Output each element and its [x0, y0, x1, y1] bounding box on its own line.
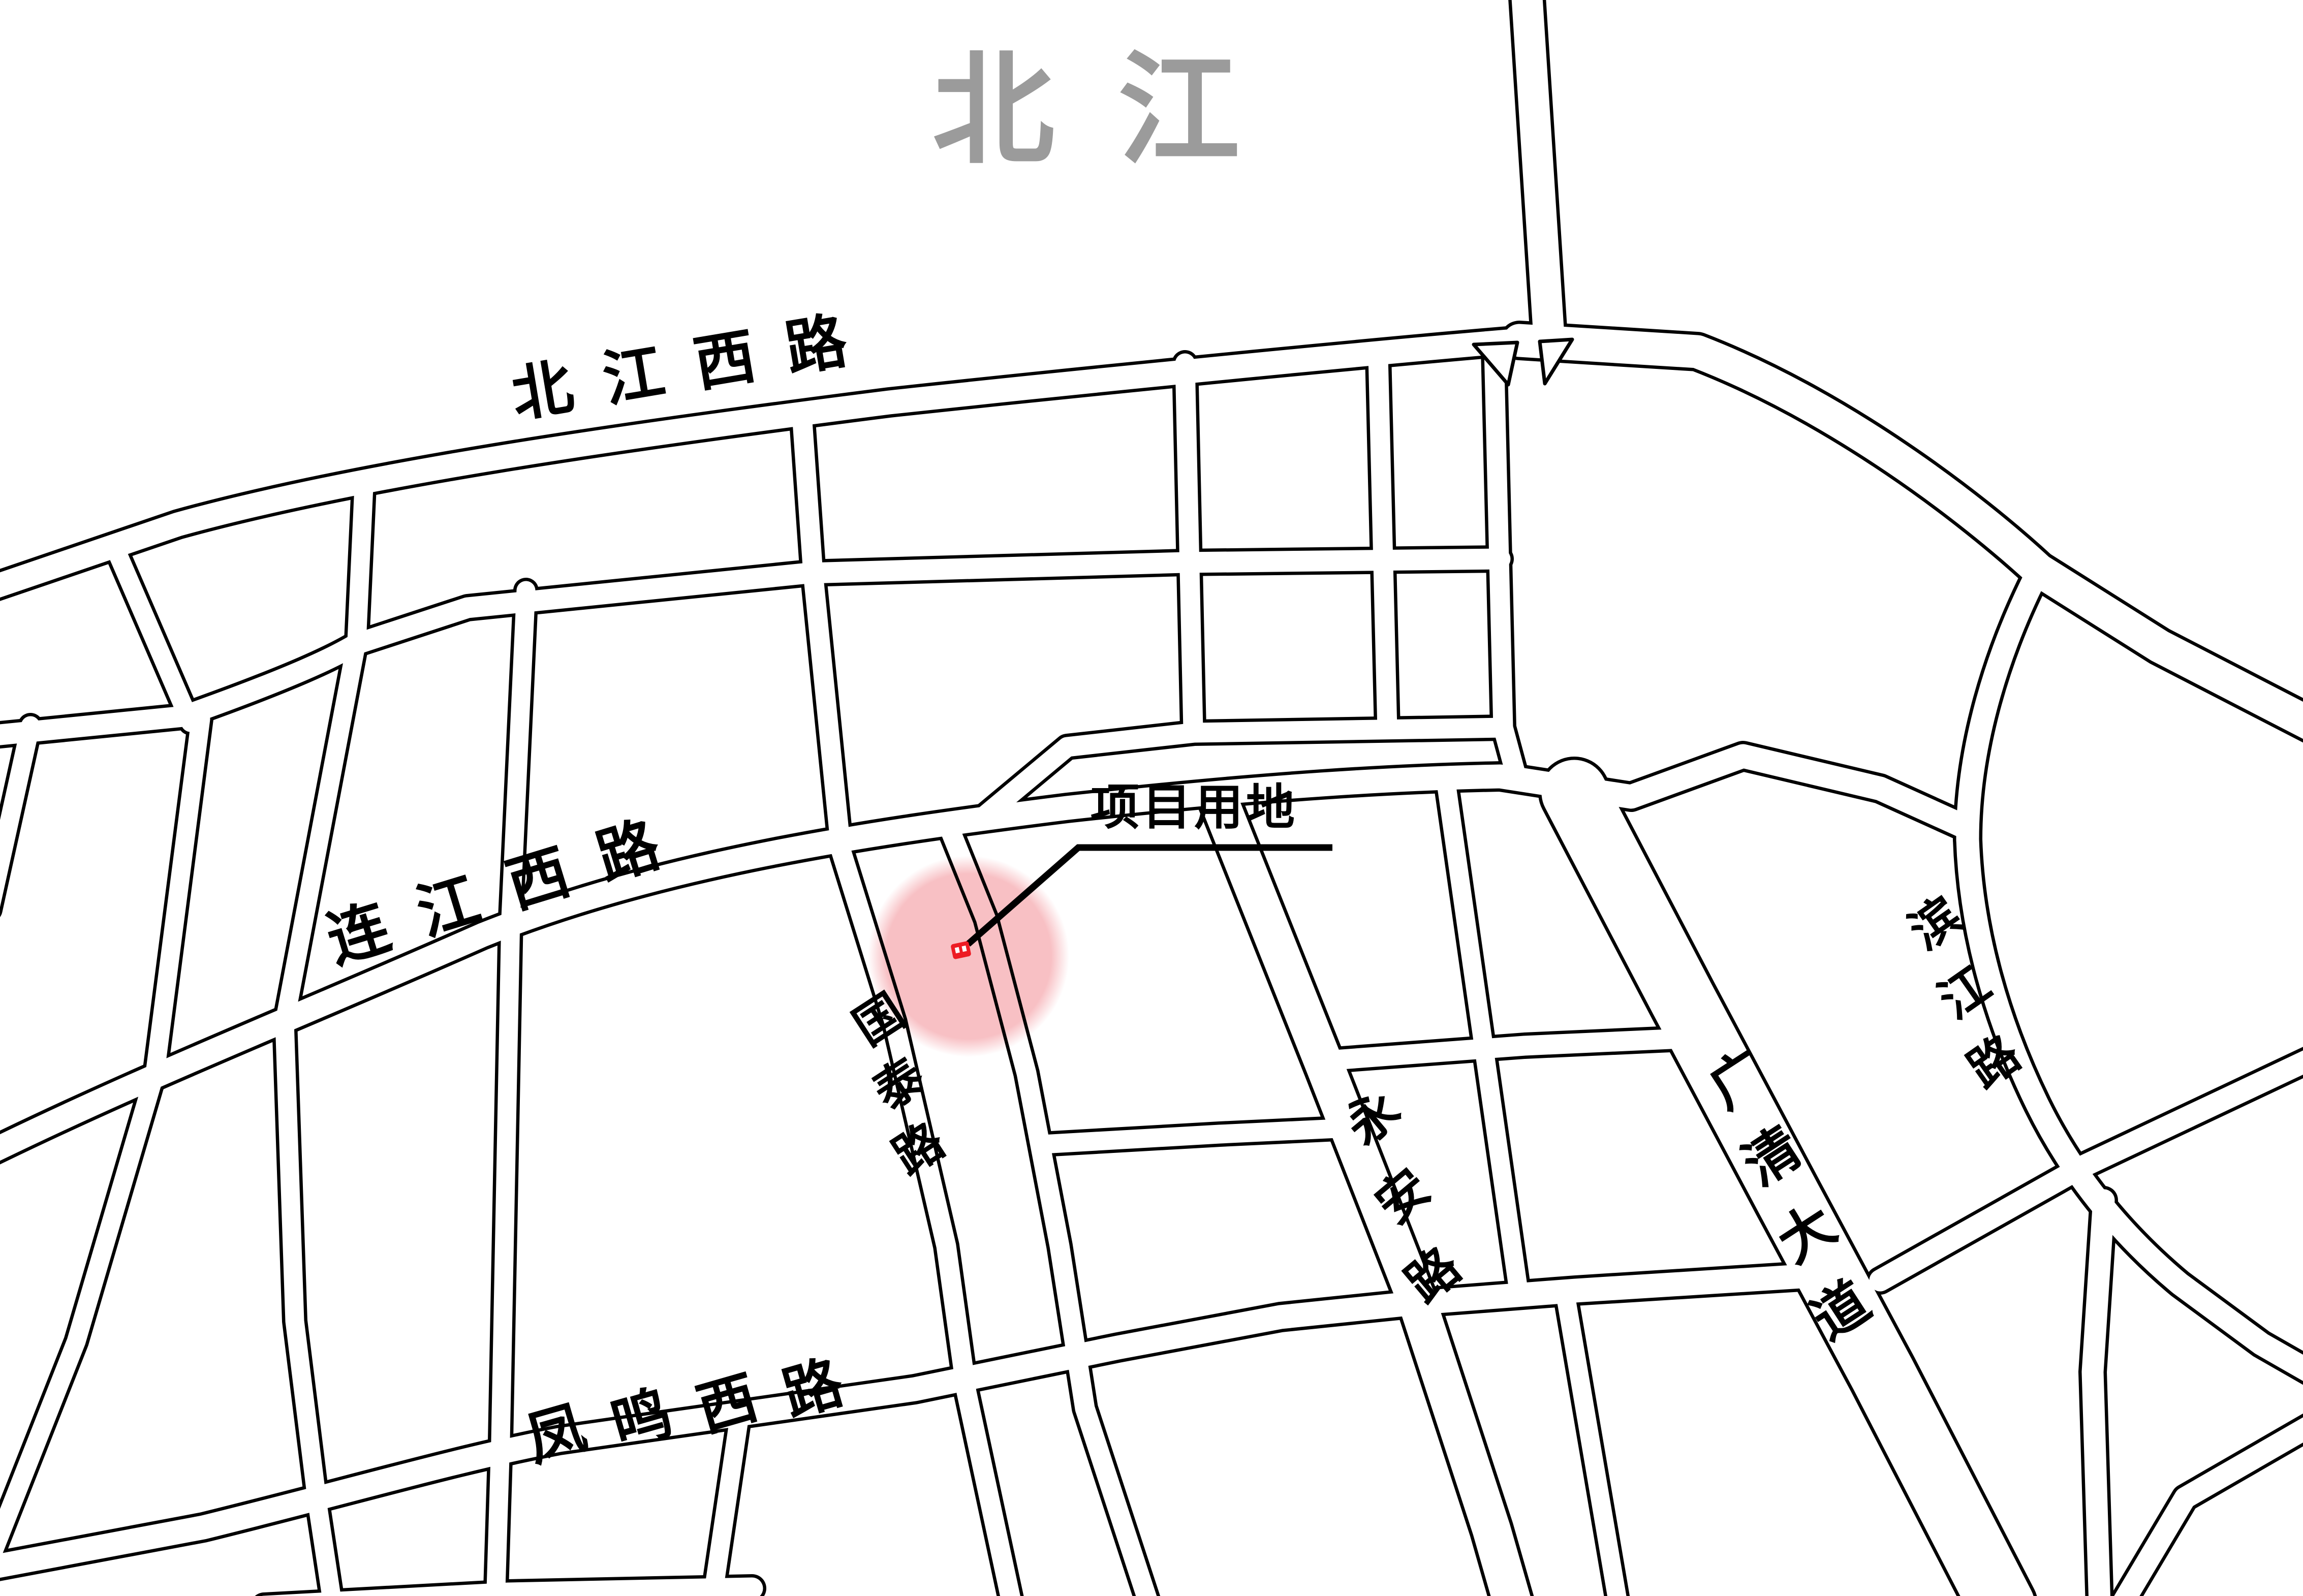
road-s2	[2093, 1200, 2104, 1596]
road-w1	[0, 726, 30, 910]
road-intermediate	[0, 559, 1500, 736]
road-connector-w3	[357, 487, 364, 641]
road-bottom-right	[2121, 1422, 2303, 1596]
road-binjiang-south	[1968, 839, 2303, 1376]
road-binjiang-south	[1968, 839, 2303, 1376]
road-label-fengming-west: 凤鸣西路	[518, 1340, 879, 1475]
site-location-map: 北江 项目用地 北江西路 连江西路 凤鸣西路 国泰路 永安路 广清大道 滨江路	[0, 0, 2303, 1596]
road-grid-left	[1185, 363, 1193, 729]
map-title-beijiang-river: 北江	[932, 42, 1303, 178]
road-binjiang-north	[1968, 570, 2039, 839]
road-connector-w0	[114, 546, 191, 723]
road-grid-mid	[1378, 356, 1387, 729]
road-beijiang-east	[1519, 340, 2303, 728]
map-canvas: 北江 项目用地 北江西路 连江西路 凤鸣西路 国泰路 永安路 广清大道 滨江路	[0, 0, 2303, 1596]
project-site-label: 项目用地	[1091, 780, 1298, 835]
road-label-binjiang: 滨江路	[1894, 868, 2058, 1103]
road-y3	[1565, 1293, 1619, 1596]
